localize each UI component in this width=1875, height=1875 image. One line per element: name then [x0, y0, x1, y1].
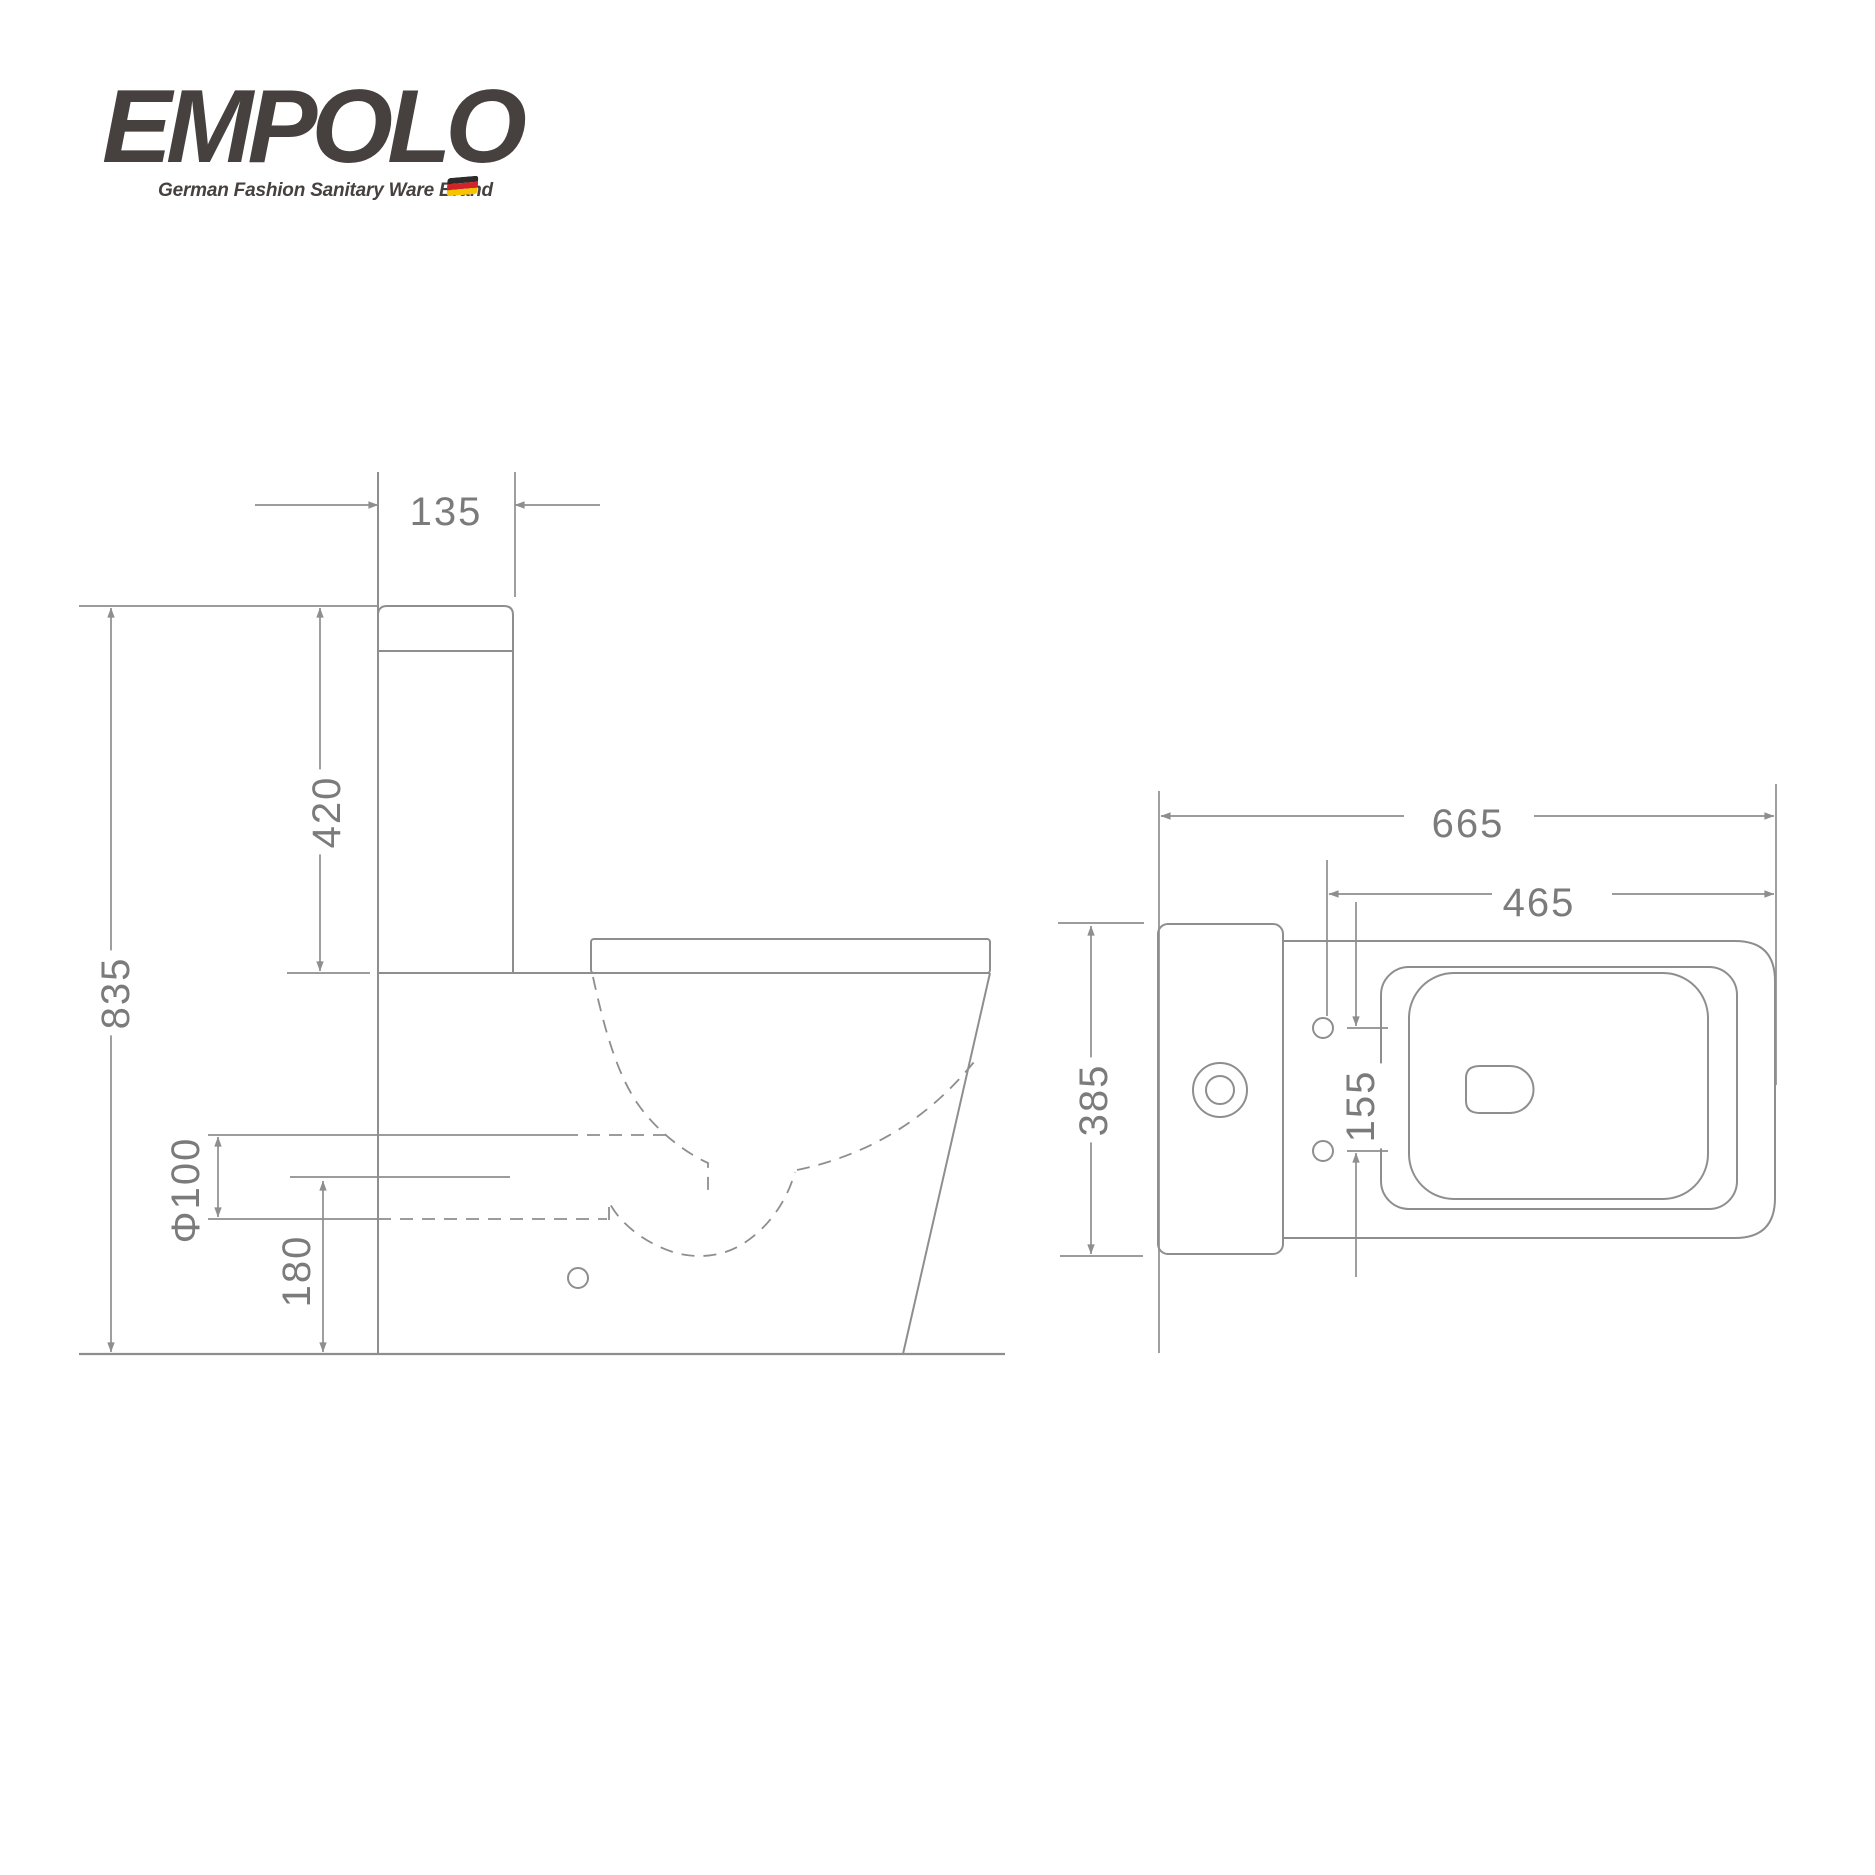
dim-tank-width-label: 135 [404, 490, 489, 534]
page: { "logo": { "brand": "EMPOLO", "tagline"… [0, 0, 1875, 1875]
side-bolt-hole [568, 1268, 588, 1288]
dim-drain-diameter-label: Φ100 [164, 1131, 208, 1250]
dim-drain-height-label: 180 [275, 1229, 319, 1314]
top-bolt-hole-upper [1313, 1018, 1333, 1038]
cistern-top-outline [1158, 924, 1283, 1254]
top-bolt-hole-lower [1313, 1141, 1333, 1161]
bowl-back-slant [903, 973, 990, 1354]
seat-outer-ring [1381, 967, 1737, 1209]
seat-profile [591, 939, 990, 973]
dim-tank-height-label: 420 [305, 770, 349, 855]
dim-seat-depth-label: 465 [1497, 881, 1582, 925]
toilet-dimension-drawing [0, 0, 1875, 1875]
bowl-back-dashed [797, 1062, 974, 1170]
trapway-front-dashed [593, 977, 708, 1192]
water-inlet-inner [1206, 1076, 1234, 1104]
trapway-bottom-dashed [609, 1172, 795, 1256]
seat-inner-ring [1409, 973, 1708, 1199]
dim-total-width-label: 385 [1072, 1058, 1116, 1143]
top-view [1058, 784, 1776, 1353]
dim-total-height-label: 835 [94, 951, 138, 1036]
side-view [79, 472, 1005, 1354]
dim-bolt-spacing-label: 155 [1339, 1064, 1383, 1149]
water-inlet-outer [1193, 1063, 1247, 1117]
flush-outlet-hole [1466, 1066, 1534, 1113]
dim-total-depth-label: 665 [1426, 802, 1511, 846]
cistern-outline [378, 606, 513, 973]
